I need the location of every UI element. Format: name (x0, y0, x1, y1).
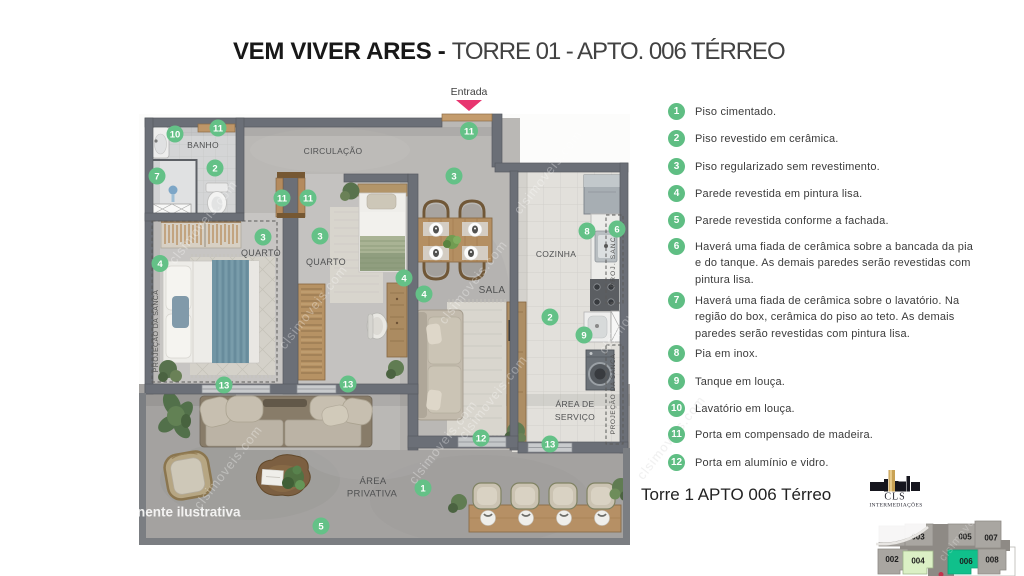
svg-text:10: 10 (170, 130, 181, 141)
svg-text:007: 007 (984, 534, 998, 543)
svg-text:11: 11 (213, 124, 224, 135)
svg-text:8: 8 (584, 227, 589, 238)
svg-text:4: 4 (157, 259, 163, 270)
svg-text:4: 4 (421, 290, 427, 301)
svg-text:9: 9 (581, 331, 586, 342)
svg-text:6: 6 (614, 225, 619, 236)
svg-text:13: 13 (343, 380, 354, 391)
svg-text:CLS: CLS (884, 492, 905, 503)
svg-text:11: 11 (464, 127, 475, 138)
svg-text:INTERMEDIAÇÕES: INTERMEDIAÇÕES (869, 501, 922, 509)
svg-text:12: 12 (476, 434, 487, 445)
svg-text:13: 13 (545, 440, 556, 451)
svg-text:3: 3 (451, 172, 456, 183)
svg-text:002: 002 (885, 555, 899, 564)
svg-text:Entrada: Entrada (451, 86, 488, 98)
svg-text:004: 004 (911, 557, 925, 566)
svg-text:2: 2 (547, 313, 552, 324)
svg-text:4: 4 (401, 274, 407, 285)
svg-text:13: 13 (219, 381, 230, 392)
svg-text:7: 7 (154, 172, 159, 183)
svg-text:5: 5 (318, 522, 324, 533)
svg-text:1: 1 (420, 484, 426, 495)
svg-text:2: 2 (212, 164, 217, 175)
svg-text:006: 006 (959, 557, 973, 566)
svg-text:008: 008 (985, 556, 999, 565)
svg-text:3: 3 (317, 232, 322, 243)
svg-text:11: 11 (303, 194, 314, 205)
svg-text:3: 3 (260, 233, 265, 244)
svg-text:11: 11 (277, 194, 288, 205)
